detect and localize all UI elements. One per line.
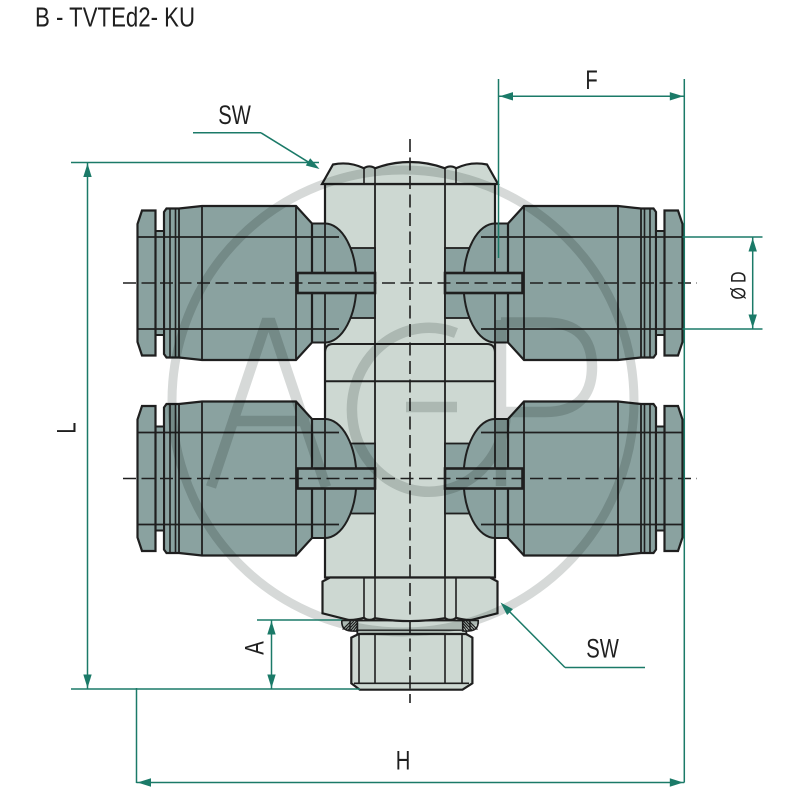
svg-text:SW: SW — [218, 100, 251, 131]
svg-text:L: L — [52, 422, 83, 433]
svg-text:B - TVTEd2- KU: B - TVTEd2- KU — [35, 2, 195, 33]
svg-text:F: F — [585, 65, 597, 96]
svg-text:H: H — [396, 746, 411, 777]
svg-text:SW: SW — [586, 634, 619, 665]
svg-text:Ø D: Ø D — [726, 272, 750, 300]
svg-text:A: A — [240, 641, 271, 655]
